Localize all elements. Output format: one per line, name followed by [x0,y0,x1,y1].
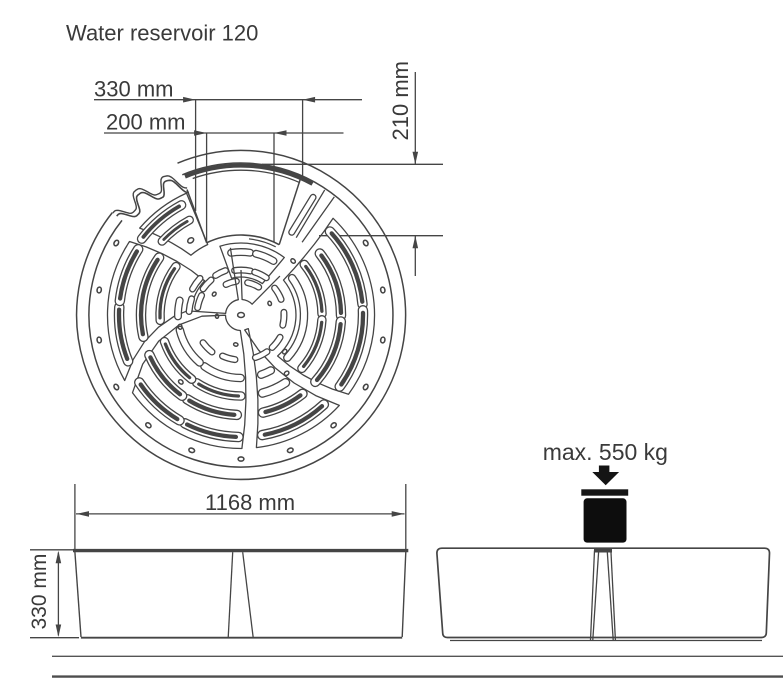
svg-text:Water reservoir 120: Water reservoir 120 [66,21,258,46]
svg-text:330 mm: 330 mm [28,554,51,630]
svg-text:330 mm: 330 mm [94,77,173,102]
svg-text:1168 mm: 1168 mm [205,490,295,515]
svg-text:200 mm: 200 mm [106,109,185,134]
svg-text:max. 550 kg: max. 550 kg [543,439,668,465]
svg-text:210 mm: 210 mm [388,61,413,140]
